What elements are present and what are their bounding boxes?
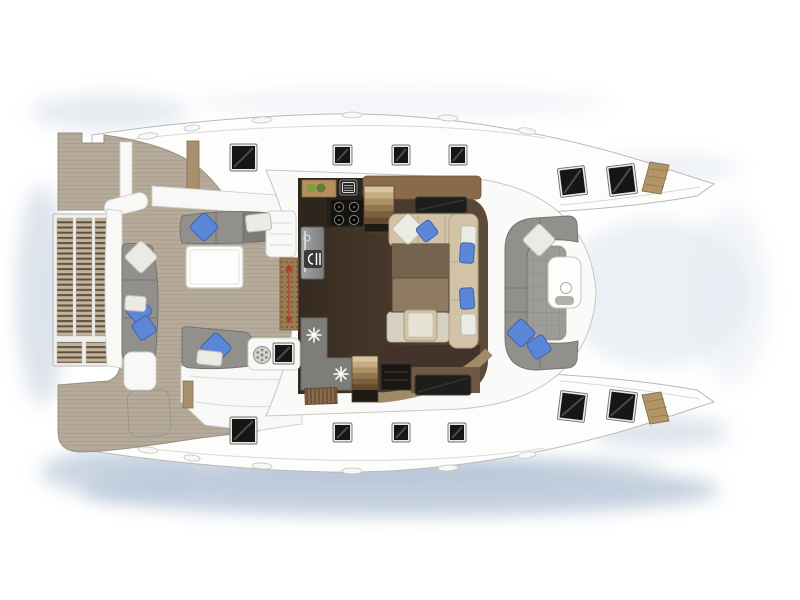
decor-greens-icon xyxy=(307,184,316,193)
forward-cockpit-table xyxy=(548,257,581,308)
catamaran-deck-plan xyxy=(0,0,800,600)
deck-hatch xyxy=(392,423,410,442)
white-pillow xyxy=(461,314,477,336)
deck-cleat-pad xyxy=(342,468,362,474)
deck-hatch xyxy=(557,165,587,197)
white-pillow xyxy=(196,350,222,367)
dining-table xyxy=(392,244,449,312)
refrigerator xyxy=(301,227,324,279)
stair-tread xyxy=(352,362,378,368)
galley-counter-side xyxy=(298,196,328,227)
decor-greens-icon xyxy=(317,184,326,193)
deck-hatch xyxy=(333,145,352,165)
water-shadow xyxy=(190,89,610,117)
stair-tread xyxy=(352,373,378,379)
burner-center xyxy=(338,206,341,209)
deck-hatch xyxy=(230,417,257,444)
aft-sofa-white-seat xyxy=(124,352,156,390)
deck-hatch xyxy=(273,343,294,364)
burner-center xyxy=(353,206,356,209)
white-pillow xyxy=(245,213,272,233)
skylight-window xyxy=(415,197,467,213)
stair-tread xyxy=(364,211,394,218)
cutlery-icon xyxy=(304,250,322,268)
dining-ottoman xyxy=(404,310,437,341)
deck-hatch xyxy=(557,390,587,422)
aft-cockpit-table xyxy=(186,246,243,288)
deck-hatch xyxy=(230,144,257,171)
stair-tread xyxy=(364,192,394,199)
deck-hatch xyxy=(449,145,467,165)
stair-tread xyxy=(364,205,394,212)
stairwell-void xyxy=(352,390,378,402)
deck-plan-canvas xyxy=(0,0,800,600)
blue-pillow xyxy=(459,243,474,264)
oven-drawers xyxy=(381,364,411,390)
transom-side-band xyxy=(105,209,122,368)
deck-hatch xyxy=(606,163,637,196)
water-shadow xyxy=(30,94,190,130)
burner-center xyxy=(338,219,341,222)
stair-tread xyxy=(352,356,378,362)
saloon-entry-mat xyxy=(280,258,298,330)
deck-hatch xyxy=(333,423,352,442)
hull-staircase xyxy=(352,356,378,402)
stair-tread xyxy=(352,379,378,385)
sink-icon xyxy=(340,180,357,195)
tray-icon xyxy=(555,296,574,305)
stove-burners-icon xyxy=(330,199,364,226)
stair-tread xyxy=(352,384,378,390)
deck-hatch xyxy=(448,423,466,442)
stair-tread xyxy=(364,186,394,193)
water-shadow xyxy=(690,205,770,385)
stair-tread xyxy=(364,199,394,206)
deck-hatch xyxy=(606,389,637,422)
wine-rack-icon xyxy=(305,387,338,404)
cup-icon xyxy=(561,283,572,294)
round-grate-icon xyxy=(254,347,271,364)
deck-hatch xyxy=(392,145,410,165)
deck-cleat-pad xyxy=(342,112,362,118)
blue-pillow xyxy=(459,288,474,310)
snowflake-fridge-icon xyxy=(334,367,348,381)
skylight-window xyxy=(415,375,471,395)
white-pillow xyxy=(125,295,147,311)
stair-tread xyxy=(352,367,378,373)
burner-center xyxy=(353,219,356,222)
snowflake-fridge-icon xyxy=(307,328,321,342)
cockpit-arch-post-port xyxy=(183,381,193,408)
